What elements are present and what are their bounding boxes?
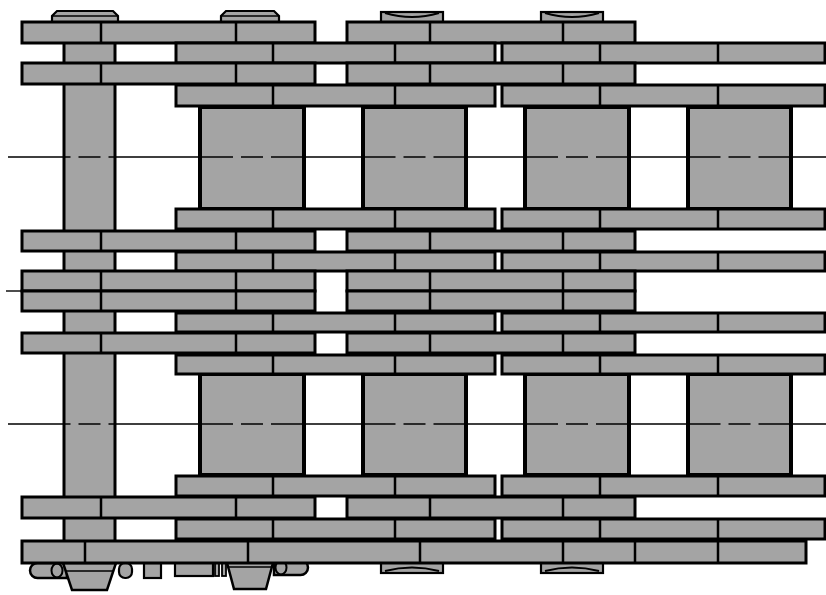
link-plate-segment bbox=[502, 519, 825, 539]
roller bbox=[200, 107, 304, 209]
link-plate-segment bbox=[502, 313, 825, 332]
link-plate-segment bbox=[502, 43, 825, 63]
chain-drawing-svg bbox=[0, 0, 826, 595]
link-plate-segment bbox=[347, 497, 635, 518]
link-plate-segment bbox=[22, 541, 806, 563]
link-plate-segment bbox=[176, 313, 495, 332]
cotter-prong bbox=[119, 563, 132, 578]
link-plate-segment bbox=[22, 497, 315, 518]
link-plate-segment bbox=[176, 209, 495, 229]
link-plate-segment bbox=[176, 85, 495, 106]
link-plate-segment bbox=[347, 231, 635, 251]
roller bbox=[363, 107, 466, 209]
link-plate-segment bbox=[502, 85, 825, 106]
roller bbox=[688, 107, 791, 209]
link-plate-segment bbox=[502, 476, 825, 496]
link-plate-segment bbox=[502, 252, 825, 271]
link-plate-segment bbox=[347, 271, 635, 291]
link-plate-segment bbox=[22, 231, 315, 251]
link-plate-segment bbox=[22, 291, 315, 311]
link-plate-segment bbox=[22, 333, 315, 353]
link-plate-segment bbox=[22, 271, 315, 291]
link-plate-segment bbox=[347, 291, 635, 311]
link-plate-segment bbox=[347, 63, 635, 84]
link-plate-segment bbox=[22, 22, 315, 43]
roller bbox=[525, 107, 629, 209]
link-plate-segment bbox=[176, 519, 495, 539]
link-plate-segment bbox=[176, 252, 495, 271]
link-plate-segment bbox=[176, 43, 495, 63]
pin-end-taper bbox=[63, 563, 116, 590]
link-plate-segment bbox=[347, 333, 635, 353]
link-plate-segment bbox=[176, 355, 495, 374]
link-plate-segment bbox=[502, 355, 825, 374]
chain-drawing bbox=[0, 0, 826, 595]
pin-collar bbox=[144, 563, 161, 578]
link-plate-segment bbox=[22, 63, 315, 84]
link-plate-segment bbox=[347, 22, 635, 43]
link-plate-segment bbox=[502, 209, 825, 229]
link-plate-segment bbox=[176, 476, 495, 496]
